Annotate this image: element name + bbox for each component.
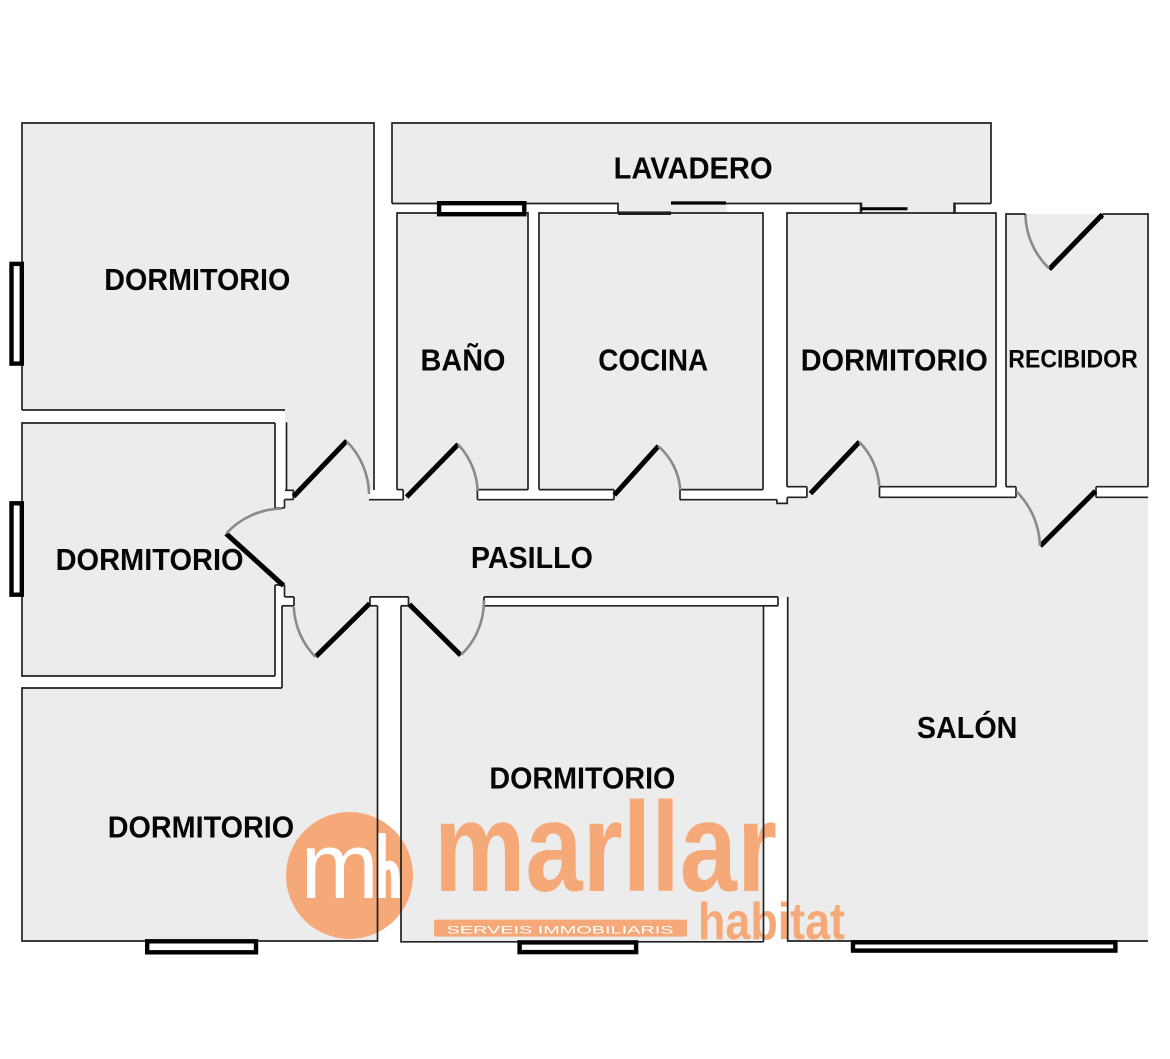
svg-text:LAVADERO: LAVADERO bbox=[614, 151, 773, 186]
svg-text:RECIBIDOR: RECIBIDOR bbox=[1008, 345, 1138, 373]
svg-text:SERVEIS IMMOBILIARIS: SERVEIS IMMOBILIARIS bbox=[447, 924, 674, 936]
svg-text:DORMITORIO: DORMITORIO bbox=[56, 542, 244, 577]
svg-text:COCINA: COCINA bbox=[598, 343, 708, 378]
svg-text:BAÑO: BAÑO bbox=[421, 343, 506, 378]
svg-text:PASILLO: PASILLO bbox=[471, 540, 593, 575]
svg-text:SALÓN: SALÓN bbox=[917, 709, 1018, 745]
svg-text:DORMITORIO: DORMITORIO bbox=[489, 760, 675, 795]
svg-text:DORMITORIO: DORMITORIO bbox=[104, 262, 290, 297]
svg-text:m: m bbox=[301, 813, 379, 918]
svg-text:DORMITORIO: DORMITORIO bbox=[108, 809, 295, 844]
svg-text:DORMITORIO: DORMITORIO bbox=[801, 342, 988, 377]
